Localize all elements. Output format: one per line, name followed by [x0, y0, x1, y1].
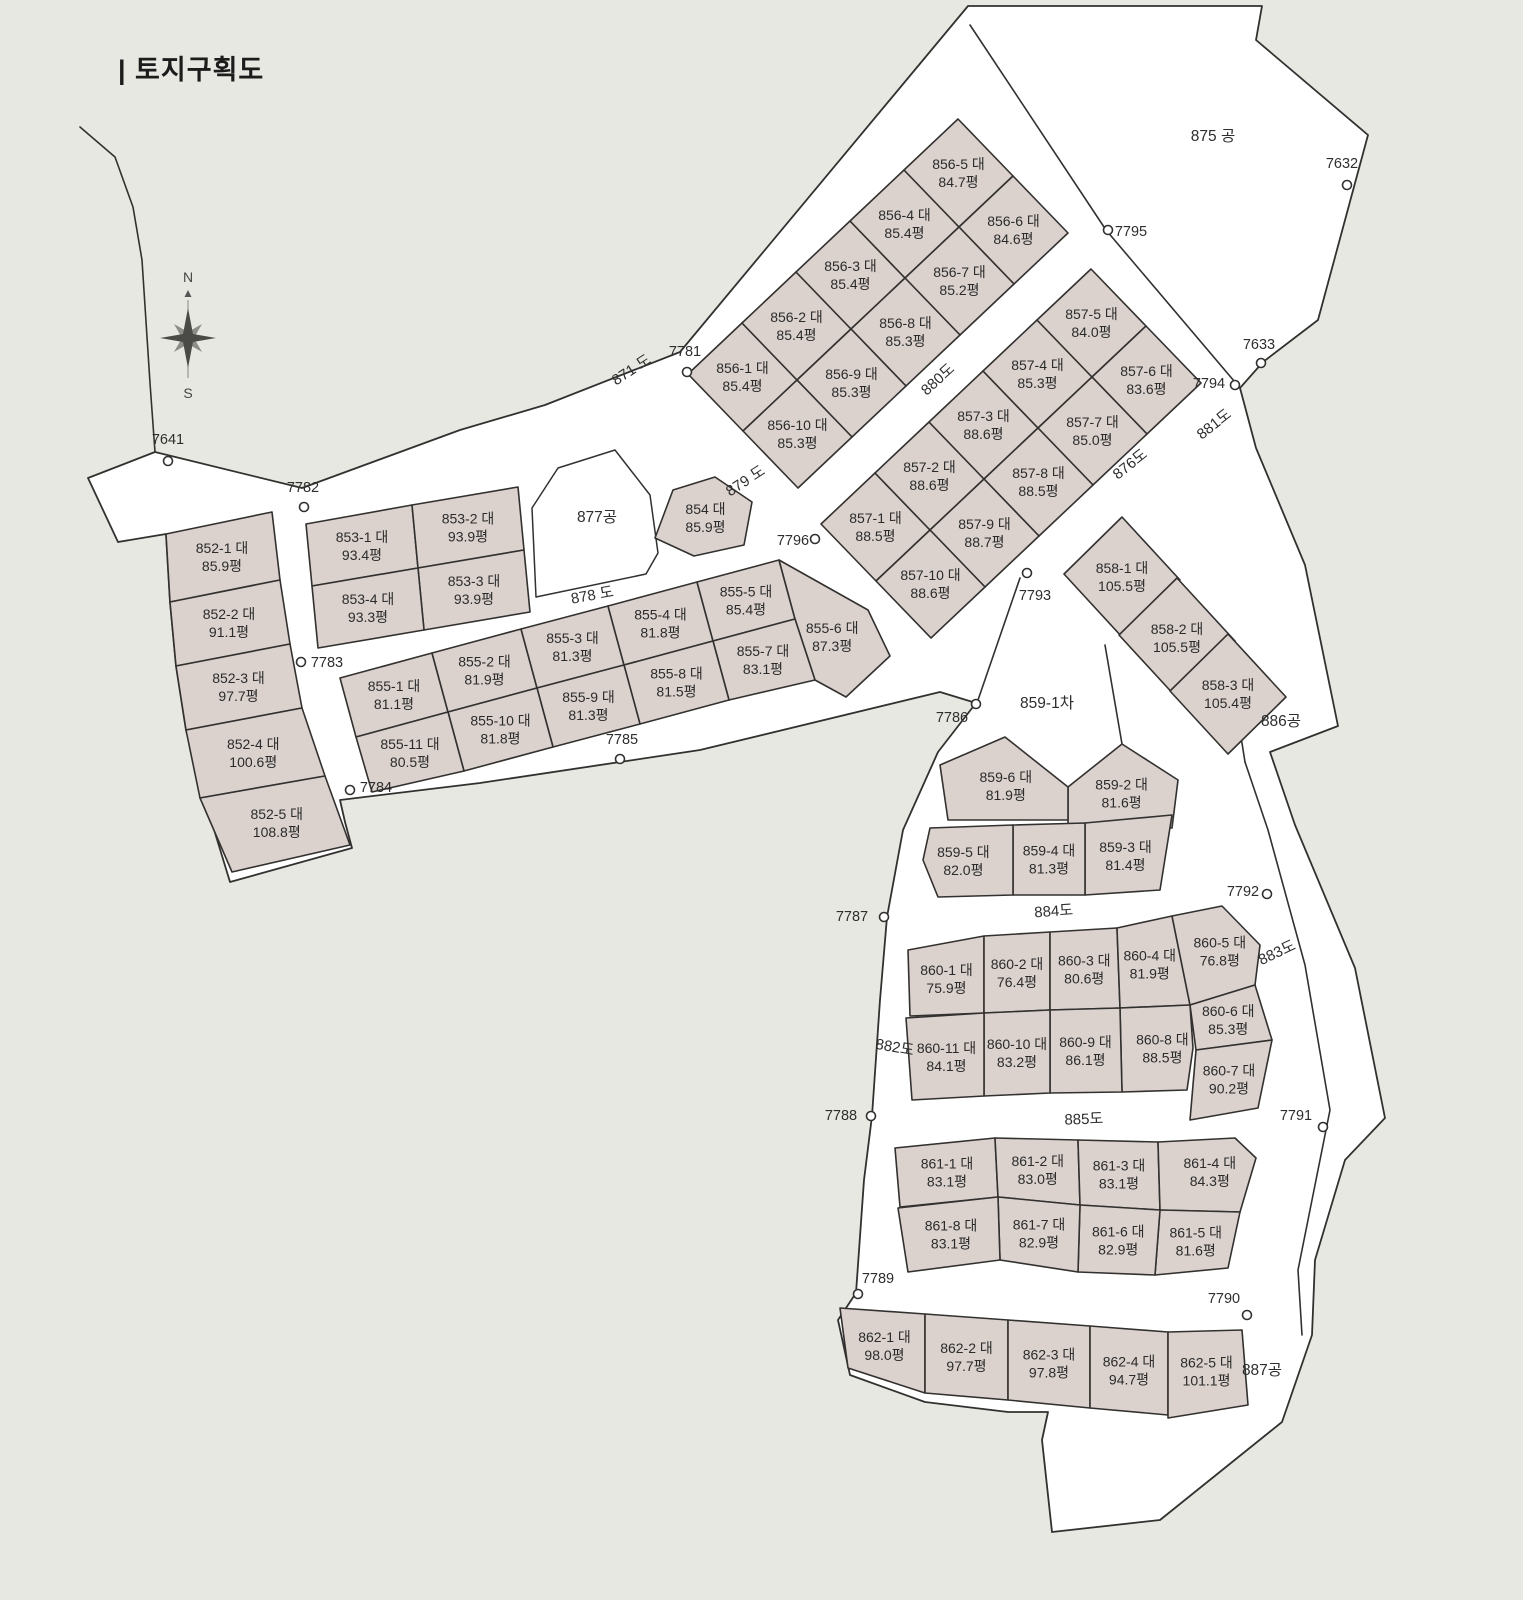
road-label-884도: 884도 — [1034, 902, 1074, 922]
survey-point-marker — [1104, 226, 1113, 235]
parcel-860-2 — [984, 932, 1050, 1013]
survey-point-marker — [616, 755, 625, 764]
parcel-859-4 — [1013, 823, 1085, 895]
survey-point-label: 7787 — [836, 909, 868, 925]
survey-point-label: 7791 — [1280, 1108, 1312, 1124]
compass-north-label: N — [183, 269, 193, 285]
survey-point-marker — [683, 368, 692, 377]
survey-point-marker — [880, 913, 889, 922]
parcel-859-5 — [923, 825, 1013, 897]
survey-point-marker — [1263, 890, 1272, 899]
survey-point-label: 7781 — [669, 344, 701, 360]
parcel-860-8 — [1120, 1005, 1193, 1092]
zone-label-887공: 887공 — [1242, 1362, 1282, 1379]
survey-point-label: 7782 — [287, 480, 319, 496]
survey-point-label: 7792 — [1227, 884, 1259, 900]
parcel-861-1 — [895, 1138, 998, 1207]
survey-point-marker — [1319, 1123, 1328, 1132]
compass-south-label: S — [183, 385, 192, 401]
survey-point-label: 7786 — [936, 710, 968, 726]
survey-point-marker — [1243, 1311, 1252, 1320]
survey-point-label: 7794 — [1193, 376, 1225, 392]
survey-point-marker — [867, 1112, 876, 1121]
survey-point-marker — [972, 700, 981, 709]
survey-point-label: 7633 — [1243, 337, 1275, 353]
survey-point-marker — [1023, 569, 1032, 578]
survey-point-marker — [346, 786, 355, 795]
land-plot-map-page: 852-1 대85.9평852-2 대91.1평852-3 대97.7평852-… — [0, 0, 1523, 1600]
road-label-885도: 885도 — [1064, 1110, 1104, 1128]
survey-point-label: 7796 — [777, 533, 809, 549]
survey-point-marker — [300, 503, 309, 512]
survey-point-label: 7632 — [1326, 156, 1358, 172]
parcel-861-6 — [1078, 1205, 1160, 1275]
parcel-859-3 — [1085, 815, 1172, 895]
survey-point-label: 7789 — [862, 1271, 894, 1287]
survey-point-marker — [1231, 381, 1240, 390]
zone-label-877공: 877공 — [577, 509, 617, 526]
survey-point-label: 7641 — [152, 432, 184, 448]
survey-point-label: 7788 — [825, 1108, 857, 1124]
survey-point-marker — [1257, 359, 1266, 368]
zone-label-875 공: 875 공 — [1191, 128, 1235, 145]
survey-point-label: 7784 — [360, 780, 392, 796]
survey-point-marker — [854, 1290, 863, 1299]
parcel-860-11 — [906, 1013, 984, 1100]
survey-point-label: 7785 — [606, 732, 638, 748]
survey-point-label: 7790 — [1208, 1291, 1240, 1307]
survey-point-label: 7783 — [311, 655, 343, 671]
parcel-860-9 — [1050, 1008, 1122, 1093]
land-plot-map: 852-1 대85.9평852-2 대91.1평852-3 대97.7평852-… — [0, 0, 1523, 1600]
zone-label-886공: 886공 — [1261, 713, 1301, 730]
page-title: | 토지구획도 — [118, 48, 264, 87]
survey-point-marker — [811, 535, 820, 544]
survey-point-marker — [297, 658, 306, 667]
survey-point-marker — [1343, 181, 1352, 190]
survey-point-label: 7795 — [1115, 224, 1147, 240]
parcel-860-3 — [1050, 928, 1120, 1010]
parcel-860-10 — [984, 1010, 1050, 1096]
block-861: 861-1 대83.1평861-2 대83.0평861-3 대83.1평861-… — [895, 1138, 1256, 1275]
survey-point-marker — [164, 457, 173, 466]
zone-label-859-1차: 859-1차 — [1020, 694, 1074, 712]
survey-point-label: 7793 — [1019, 588, 1051, 604]
